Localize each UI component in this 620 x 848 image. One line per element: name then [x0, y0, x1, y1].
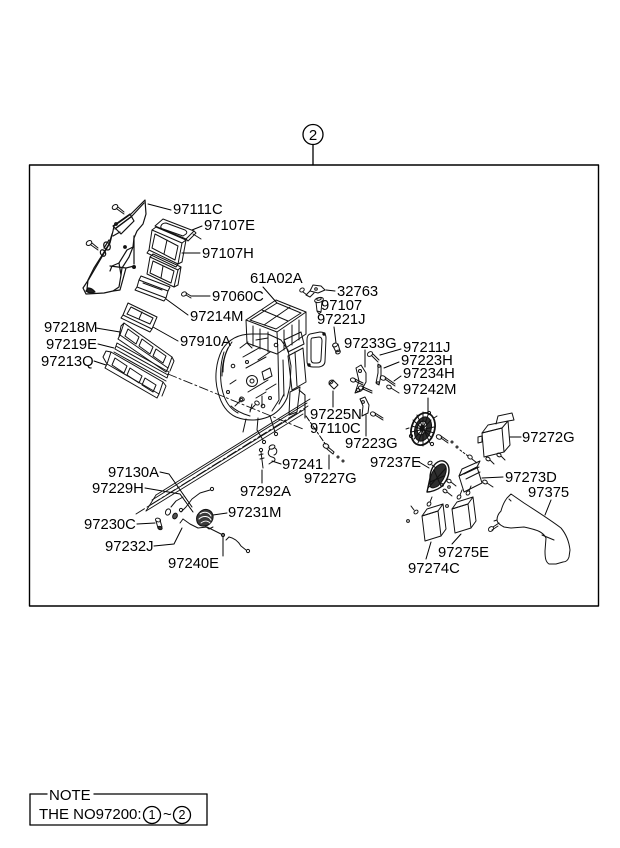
svg-text:97221J: 97221J	[317, 312, 366, 328]
svg-text:THE NO97200:: THE NO97200:	[39, 806, 142, 823]
svg-text:97273D: 97273D	[505, 470, 557, 486]
svg-text:97242M: 97242M	[403, 382, 456, 398]
svg-text:2: 2	[309, 127, 317, 144]
svg-text:97232J: 97232J	[105, 539, 154, 555]
svg-text:97107E: 97107E	[204, 218, 255, 234]
svg-text:97240E: 97240E	[168, 556, 219, 572]
svg-text:97214M: 97214M	[190, 309, 243, 325]
svg-text:97233G: 97233G	[344, 336, 397, 352]
svg-text:1: 1	[149, 808, 156, 822]
svg-text:2: 2	[179, 808, 186, 822]
svg-text:97230C: 97230C	[84, 517, 136, 533]
svg-text:61A02A: 61A02A	[250, 271, 303, 287]
svg-text:97237E: 97237E	[370, 455, 421, 471]
svg-text:97107H: 97107H	[202, 246, 254, 262]
svg-text:97219E: 97219E	[46, 337, 97, 353]
svg-text:97213Q: 97213Q	[41, 354, 94, 370]
svg-text:97060C: 97060C	[212, 289, 264, 305]
svg-text:~: ~	[163, 806, 172, 823]
svg-text:97272G: 97272G	[522, 430, 575, 446]
svg-text:97229H: 97229H	[92, 481, 144, 497]
svg-text:97218M: 97218M	[44, 320, 97, 336]
svg-text:97274C: 97274C	[408, 561, 460, 577]
svg-text:97227G: 97227G	[304, 471, 357, 487]
svg-text:97231M: 97231M	[228, 505, 281, 521]
svg-text:97111C: 97111C	[173, 202, 223, 218]
svg-text:97110C: 97110C	[310, 421, 361, 437]
svg-text:97130A: 97130A	[108, 465, 159, 481]
svg-text:97275E: 97275E	[438, 545, 489, 561]
svg-text:97375: 97375	[528, 485, 569, 501]
svg-text:NOTE: NOTE	[49, 787, 91, 804]
svg-text:97223G: 97223G	[345, 436, 398, 452]
svg-text:97292A: 97292A	[240, 484, 291, 500]
svg-text:97234H: 97234H	[403, 366, 455, 382]
